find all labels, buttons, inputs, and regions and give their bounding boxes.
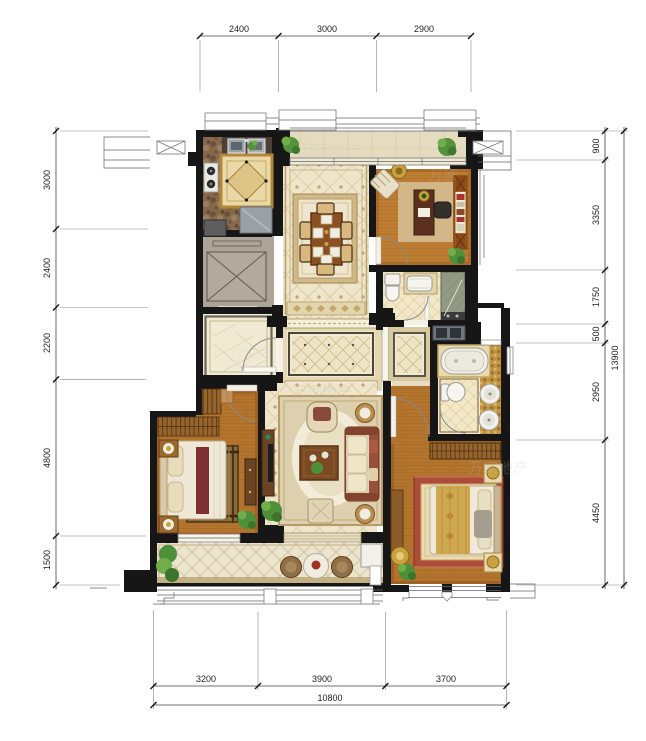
svg-text:10800: 10800	[317, 693, 342, 703]
svg-text:4800: 4800	[42, 448, 52, 468]
svg-text:13900: 13900	[610, 345, 620, 370]
svg-text:3350: 3350	[591, 205, 601, 225]
svg-text:万家: 万家	[228, 347, 258, 364]
svg-text:2400: 2400	[42, 258, 52, 278]
svg-text:2200: 2200	[42, 333, 52, 353]
svg-text:万家地产: 万家地产	[468, 460, 528, 477]
svg-text:3000: 3000	[42, 170, 52, 190]
svg-text:2400: 2400	[229, 24, 249, 34]
svg-text:3200: 3200	[196, 674, 216, 684]
svg-text:1500: 1500	[42, 550, 52, 570]
svg-text:2950: 2950	[591, 382, 601, 402]
svg-text:1750: 1750	[591, 287, 601, 307]
svg-text:3700: 3700	[436, 674, 456, 684]
svg-text:500: 500	[591, 326, 601, 341]
svg-text:900: 900	[591, 138, 601, 153]
svg-text:万家地产: 万家地产	[300, 142, 360, 159]
svg-text:3900: 3900	[312, 674, 332, 684]
svg-text:4450: 4450	[591, 503, 601, 523]
svg-text:3000: 3000	[317, 24, 337, 34]
svg-text:万家地产: 万家地产	[292, 384, 352, 401]
svg-text:2900: 2900	[414, 24, 434, 34]
svg-text:万家: 万家	[428, 167, 458, 184]
